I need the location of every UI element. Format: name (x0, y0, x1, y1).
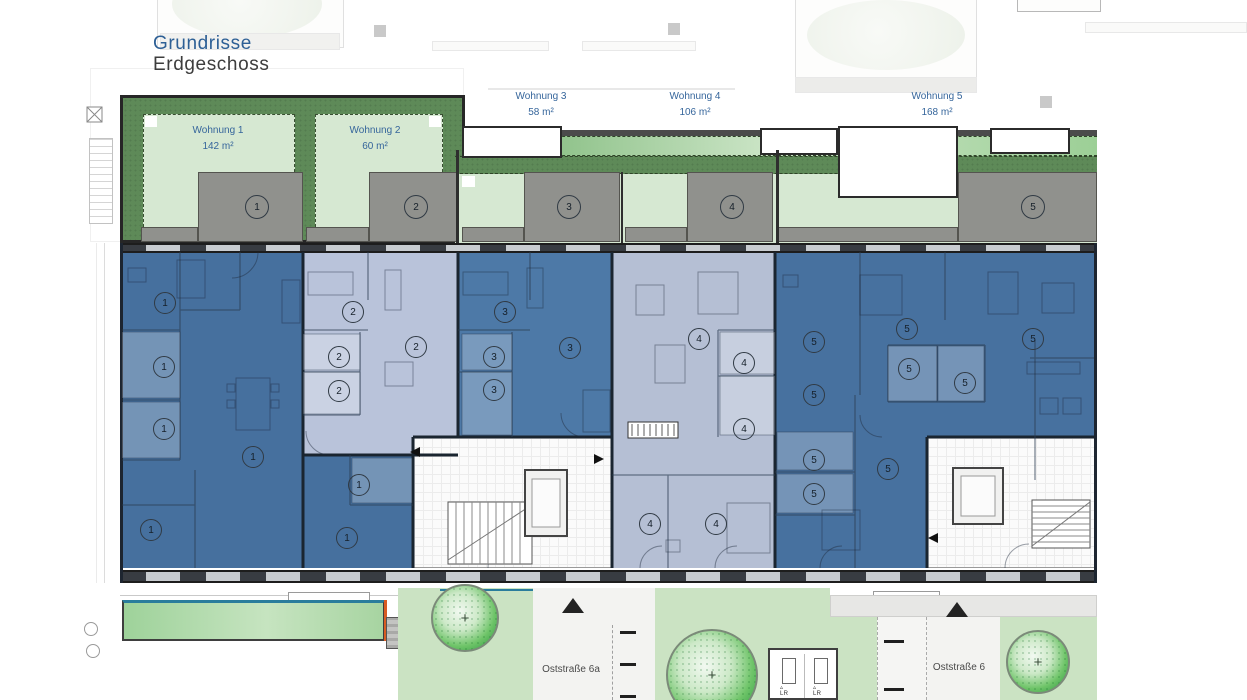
party-wall (456, 150, 459, 243)
tree-center-mark: + (708, 667, 717, 684)
unit-marker: 3 (559, 337, 581, 359)
building-bumpout (838, 126, 958, 198)
north-facade-wall (120, 243, 1097, 253)
page-title: Grundrisse (153, 33, 252, 55)
apartment-label: Wohnung 260 m² (315, 123, 435, 155)
unit-marker: 2 (328, 346, 350, 368)
page-subtitle: Erdgeschoss (153, 54, 269, 76)
terrace-marker: 2 (404, 195, 428, 219)
terrace-5-step (777, 227, 958, 242)
unit-marker: 5 (877, 458, 899, 480)
unit-marker: 5 (803, 384, 825, 406)
ghost-bar (432, 41, 549, 51)
unit-marker: 5 (898, 358, 920, 380)
unit-marker: 3 (494, 301, 516, 323)
central-stairwell (413, 437, 612, 568)
bike-parking-box (768, 648, 838, 700)
bike-rack-icon (89, 138, 113, 224)
street-name-label: Oststraße 6 (899, 662, 1019, 673)
north-marker-icon (86, 106, 103, 123)
unit-marker: 1 (154, 292, 176, 314)
terrace-marker: 1 (245, 195, 269, 219)
apartment-name: Wohnung 5 (877, 89, 997, 105)
ghost-bar (582, 41, 696, 51)
west-wall (120, 243, 123, 583)
ghost-square (1040, 96, 1052, 108)
apartment-name: Wohnung 4 (635, 89, 755, 105)
ghost-square (668, 23, 680, 35)
apartment-4-area (612, 252, 775, 568)
stall-divider (620, 631, 636, 634)
garden-corner (462, 176, 475, 187)
apartment-area: 142 m² (158, 139, 278, 155)
unit-marker: 4 (688, 328, 710, 350)
bike-stall-icon (814, 658, 828, 684)
building-bumpout (462, 126, 562, 158)
right-stairwell (927, 437, 1095, 568)
apartment-name: Wohnung 3 (481, 89, 601, 105)
unit-marker: 2 (342, 301, 364, 323)
floor-plan-canvas: Grundrisse Erdgeschoss (0, 0, 1247, 700)
apartment-area: 60 m² (315, 139, 435, 155)
terrace-1-step (141, 227, 198, 242)
unit-marker: 5 (803, 331, 825, 353)
unit-marker: 5 (803, 449, 825, 471)
unit-marker: 1 (153, 418, 175, 440)
triangle-icon: ▵ (780, 685, 783, 691)
terrace-marker: 4 (720, 195, 744, 219)
unit-marker: 1 (140, 519, 162, 541)
south-facade-wall (120, 570, 1097, 583)
party-wall (621, 172, 623, 243)
terrace-marker: 3 (557, 195, 581, 219)
apartment-area: 168 m² (877, 105, 997, 121)
sidewalk-edge-line (104, 243, 105, 583)
ghost-bar (1085, 22, 1247, 33)
unit-marker: 1 (153, 356, 175, 378)
apartment-label: Wohnung 4106 m² (635, 89, 755, 121)
unit-marker: 4 (639, 513, 661, 535)
unit-marker: 5 (896, 318, 918, 340)
unit-marker: 5 (1022, 328, 1044, 350)
terrace-2-step (306, 227, 369, 242)
tree-center-mark: + (461, 610, 470, 627)
bike-parking-label: ▵ LR (780, 684, 788, 697)
party-wall (776, 150, 779, 243)
apartment-2-area (303, 252, 458, 455)
unit-marker: 3 (483, 379, 505, 401)
entrance-arrow-icon (946, 602, 968, 617)
stall-divider (620, 695, 636, 698)
apartment-1-area (303, 455, 413, 568)
survey-point (86, 644, 100, 658)
triangle-icon: ▵ (813, 685, 816, 691)
stall-divider (884, 640, 904, 643)
apartment-area: 58 m² (481, 105, 601, 121)
ghost-tree-icon (807, 0, 965, 70)
building-bumpout (990, 128, 1070, 154)
unit-marker: 2 (328, 380, 350, 402)
tree-center-mark: + (1034, 654, 1043, 671)
ghost-frame (1017, 0, 1101, 12)
unit-marker: 5 (954, 372, 976, 394)
apartment-label: Wohnung 358 m² (481, 89, 601, 121)
unit-marker: 1 (242, 446, 264, 468)
survey-point (84, 622, 98, 636)
unit-marker: 3 (483, 346, 505, 368)
unit-marker: 4 (733, 352, 755, 374)
terrace-marker: 5 (1021, 195, 1045, 219)
stall-divider (884, 688, 904, 691)
tree-icon: + (431, 584, 499, 652)
lawn-strip (122, 600, 385, 641)
bike-stall-icon (782, 658, 796, 684)
street-name-label: Oststraße 6a (511, 664, 631, 675)
unit-marker: 5 (803, 483, 825, 505)
apartment-name: Wohnung 1 (158, 123, 278, 139)
bike-parking-label: ▵ LR (813, 684, 821, 697)
apartment-name: Wohnung 2 (315, 123, 435, 139)
unit-marker: 1 (336, 527, 358, 549)
garden-corner (145, 116, 157, 127)
sidewalk-edge-line (96, 243, 97, 583)
apartment-label: Wohnung 1142 m² (158, 123, 278, 155)
east-wall (1094, 243, 1097, 583)
unit-marker: 2 (405, 336, 427, 358)
terrace-4-step (625, 227, 687, 242)
apartment-label: Wohnung 5168 m² (877, 89, 997, 121)
unit-marker: 4 (733, 418, 755, 440)
stall-divider (804, 654, 805, 698)
apartment-area: 106 m² (635, 105, 755, 121)
entrance-arrow-icon (562, 598, 584, 613)
building-bumpout (760, 128, 838, 155)
ghost-square (374, 25, 386, 37)
unit-marker: 4 (705, 513, 727, 535)
terrace-3-step (462, 227, 524, 242)
unit-marker: 1 (348, 474, 370, 496)
apartment-3-area (458, 252, 612, 437)
street-area-6 (927, 617, 1000, 700)
